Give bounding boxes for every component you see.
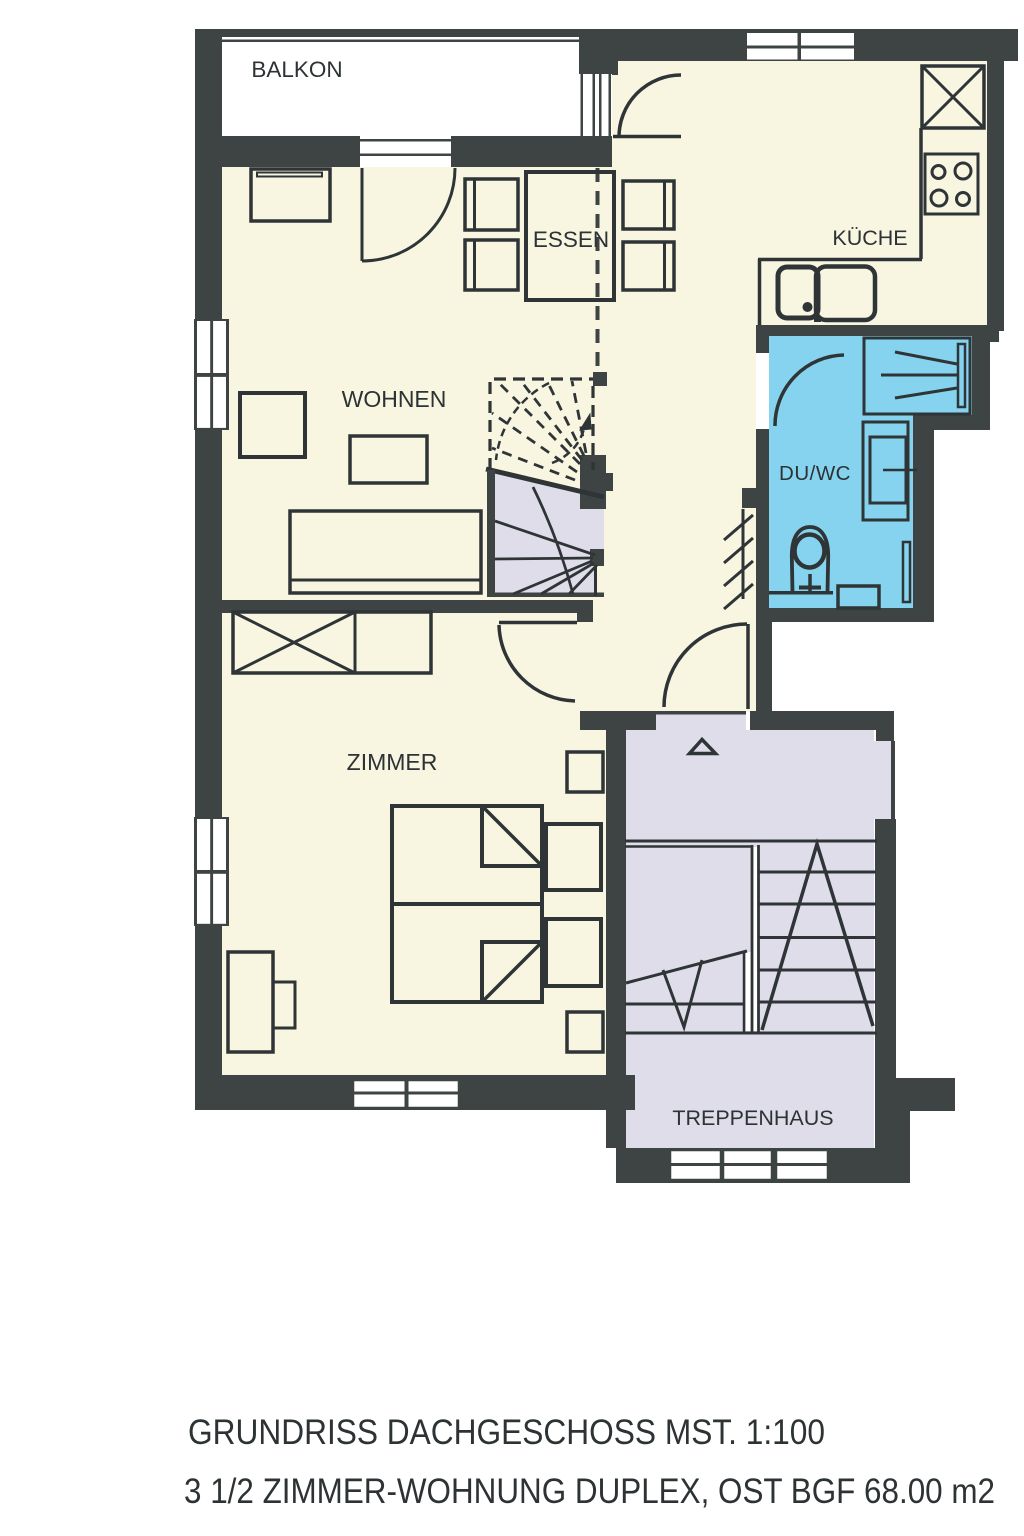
svg-text:ESSEN: ESSEN	[533, 227, 609, 252]
svg-text:3 1/2 ZIMMER-WOHNUNG DUPLEX, O: 3 1/2 ZIMMER-WOHNUNG DUPLEX, OST BGF 68.…	[184, 1472, 995, 1511]
svg-text:BALKON: BALKON	[251, 57, 342, 82]
svg-text:KÜCHE: KÜCHE	[832, 226, 907, 250]
svg-text:GRUNDRISS DACHGESCHOSS MST. 1: GRUNDRISS DACHGESCHOSS MST. 1:100	[188, 1413, 825, 1452]
svg-text:WOHNEN: WOHNEN	[342, 386, 447, 412]
svg-text:TREPPENHAUS: TREPPENHAUS	[672, 1106, 833, 1130]
svg-text:DU/WC: DU/WC	[779, 462, 851, 485]
svg-text:ZIMMER: ZIMMER	[347, 749, 438, 775]
